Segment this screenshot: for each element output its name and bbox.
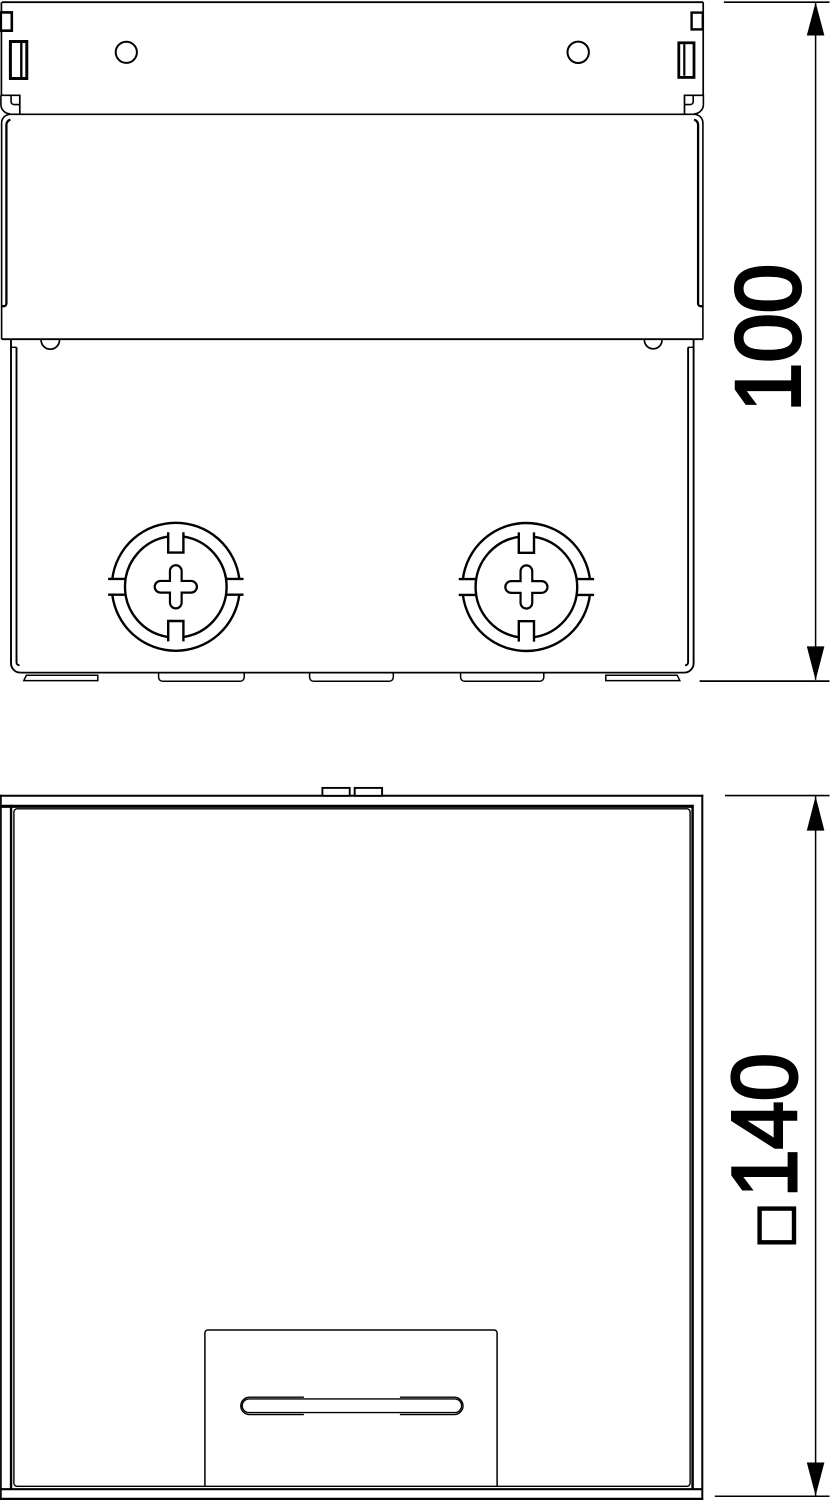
svg-text:140: 140 [712,1053,815,1197]
svg-text:100: 100 [717,264,820,412]
